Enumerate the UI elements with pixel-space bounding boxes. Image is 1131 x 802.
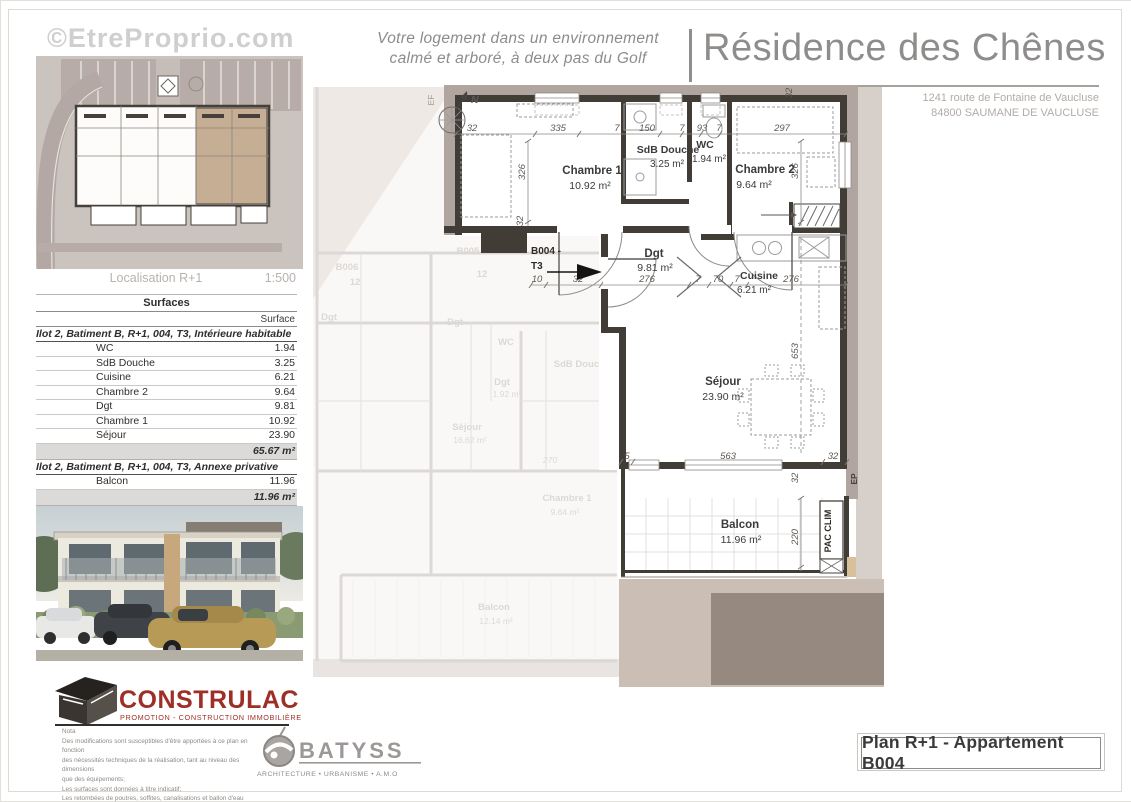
bg-label: B005 (457, 246, 480, 257)
construlac-logo: CONSTRULAC PROMOTION - CONSTRUCTION IMMO… (53, 673, 303, 729)
section-total: 65.67 m² (36, 444, 297, 461)
row-value: 10.92 (235, 415, 297, 429)
dim-label: 563 (720, 451, 737, 462)
nota-line: Nota (62, 727, 254, 737)
section-total: 11.96 m² (36, 490, 297, 507)
unit-id-label: B004 - (531, 246, 561, 257)
dim-label: 10 (532, 274, 543, 285)
room-area: 3.25 m² (650, 159, 685, 170)
dim-label: 653 (790, 342, 801, 359)
room-area: 23.90 m² (702, 391, 744, 403)
row-value: 23.90 (235, 429, 297, 443)
bg-label: Chambre 1 (542, 493, 592, 504)
dim-label: 220 (790, 528, 801, 546)
section-header-annexe: Ilot 2, Batiment B, R+1, 004, T3, Annexe… (36, 460, 297, 475)
bg-label: 16.62 m² (453, 435, 487, 445)
dim-label: 70 (713, 274, 724, 285)
dim-label: 7 (695, 274, 701, 285)
room-area: 1.94 m² (692, 154, 727, 165)
bg-label: 12 (350, 277, 361, 288)
exterior-strip-right (854, 87, 882, 579)
dim-label: 150 (639, 123, 656, 134)
table-row: Cuisine6.21 (36, 371, 297, 386)
row-label: SdB Douche (36, 357, 235, 371)
ep-label: EP (849, 473, 859, 485)
dim-label: 32 (515, 215, 526, 226)
batyss-logo: BATYSS ARCHITECTURE • URBANISME • A.M.O (255, 725, 427, 783)
title-divider-bar (689, 29, 692, 82)
room-area: 9.64 m² (736, 179, 772, 191)
row-value: 3.25 (235, 357, 297, 371)
room-name: SdB Douche (637, 144, 700, 156)
row-value: 11.96 (235, 475, 297, 489)
bg-label: 270 (542, 455, 557, 465)
row-value: 1.94 (235, 342, 297, 356)
construlac-tagline: PROMOTION - CONSTRUCTION IMMOBILIÈRE (120, 713, 302, 722)
title-block: Plan R+1 - Appartement B004 (857, 733, 1105, 771)
row-label: Cuisine (36, 371, 235, 385)
bg-label: WC (498, 337, 514, 348)
room-area: 9.81 m² (637, 262, 673, 274)
page-title: Résidence des Chênes (703, 27, 1103, 70)
building-render-photo (36, 506, 303, 661)
surfaces-title: Surfaces (36, 294, 297, 312)
watermark: ©EtreProprio.com (47, 23, 294, 54)
dim-label: 7 (679, 123, 685, 134)
bg-label: 9.64 m² (551, 507, 580, 517)
nota-line: Les retombées de poutres, soffites, cana… (62, 794, 254, 802)
dim-label: 93 (697, 123, 708, 134)
room-area: 6.21 m² (737, 285, 772, 296)
table-row: Chambre 110.92 (36, 415, 297, 430)
room-name: Dgt (644, 248, 663, 260)
table-row: Séjour23.90 (36, 429, 297, 444)
bg-label: 12.14 m² (479, 616, 513, 626)
row-label: Balcon (36, 475, 235, 489)
site-location-plan (36, 56, 303, 269)
room-name: WC (696, 139, 714, 151)
title-block-text: Plan R+1 - Appartement B004 (861, 737, 1101, 769)
floor-plan: B006 12 B005 12 Dgt Dgt WC SdB Douche Dg… (301, 81, 885, 691)
dim-label: 335 (550, 123, 567, 134)
surfaces-table: Surfaces Surface Ilot 2, Batiment B, R+1… (36, 294, 297, 506)
nota-line: Des modifications sont susceptibles d'êt… (62, 737, 254, 756)
nota-line: que des équipements; (62, 775, 254, 785)
room-name: Cuisine (740, 270, 778, 282)
tagline-line2: calmé et arboré, à deux pas du Golf (353, 49, 683, 69)
batyss-icon (264, 727, 294, 766)
dim-label: 32 (790, 472, 801, 483)
bg-label: Balcon (478, 602, 510, 613)
bg-label: Dgt (447, 317, 464, 328)
batyss-name: BATYSS (299, 738, 405, 763)
nota-text: Nota Des modifications sont susceptibles… (62, 727, 254, 802)
tagline-line1: Votre logement dans un environnement (353, 29, 683, 49)
room-name: Chambre 2 (735, 164, 794, 176)
north-label: N (471, 94, 479, 106)
bg-label: Dgt (321, 312, 338, 323)
pac-clim-label: PAC CLIM (823, 510, 833, 553)
dim-label: 326 (517, 163, 528, 180)
site-road-bottom (38, 243, 282, 252)
dim-label: 276 (782, 274, 800, 285)
dim-label: 32 (784, 87, 795, 98)
row-label: Séjour (36, 429, 235, 443)
room-name: Séjour (705, 376, 741, 388)
room-area: 11.96 m² (721, 534, 762, 546)
row-label: Chambre 2 (36, 386, 235, 400)
dim-label: 5 (624, 451, 630, 462)
localisation-label: Localisation R+1 (36, 271, 236, 285)
balcony-pillar (847, 557, 856, 577)
unit-type-label: T3 (531, 261, 543, 272)
nota-line: Les surfaces sont données à titre indica… (62, 785, 254, 795)
table-row: SdB Douche3.25 (36, 357, 297, 372)
localisation-scale: 1:500 (236, 271, 296, 285)
dim-label: 32 (467, 123, 478, 134)
room-name: Chambre 1 (562, 165, 622, 177)
construlac-building-icon (55, 677, 117, 725)
bg-label: Dgt (494, 377, 511, 388)
room-name: Balcon (721, 519, 759, 531)
row-value: 9.64 (235, 386, 297, 400)
table-row: WC1.94 (36, 342, 297, 357)
ef-label: EF (426, 95, 436, 106)
dim-label: 276 (638, 274, 656, 285)
row-label: WC (36, 342, 235, 356)
row-label: Dgt (36, 400, 235, 414)
dim-label: 32 (828, 451, 839, 462)
row-value: 6.21 (235, 371, 297, 385)
section-header-habitable: Ilot 2, Batiment B, R+1, 004, T3, Intéri… (36, 327, 297, 342)
localisation-caption: Localisation R+1 1:500 (36, 271, 296, 285)
dim-label: 7 (614, 123, 620, 134)
bg-label: 1.92 m² (493, 389, 522, 399)
construlac-name: CONSTRULAC (119, 686, 299, 714)
table-row: Balcon11.96 (36, 475, 297, 490)
table-row: Dgt9.81 (36, 400, 297, 415)
ground (36, 650, 303, 661)
marketing-tagline: Votre logement dans un environnement cal… (353, 29, 683, 69)
row-label: Chambre 1 (36, 415, 235, 429)
site-building (76, 106, 269, 225)
surface-column-header: Surface (36, 312, 297, 327)
bg-label: B006 (336, 262, 359, 273)
row-value: 9.81 (235, 400, 297, 414)
dim-label: 7 (716, 123, 722, 134)
bg-label: 12 (477, 269, 488, 280)
room-area: 10.92 m² (569, 180, 611, 192)
plan-sheet: ©EtreProprio.com Votre logement dans un … (0, 0, 1131, 802)
bg-label: Séjour (452, 422, 482, 433)
dim-label: 297 (773, 123, 791, 134)
batyss-tagline: ARCHITECTURE • URBANISME • A.M.O (257, 771, 398, 778)
table-row: Chambre 29.64 (36, 386, 297, 401)
nota-line: des nécessités techniques de la réalisat… (62, 756, 254, 775)
roof-dark-block (711, 593, 884, 685)
